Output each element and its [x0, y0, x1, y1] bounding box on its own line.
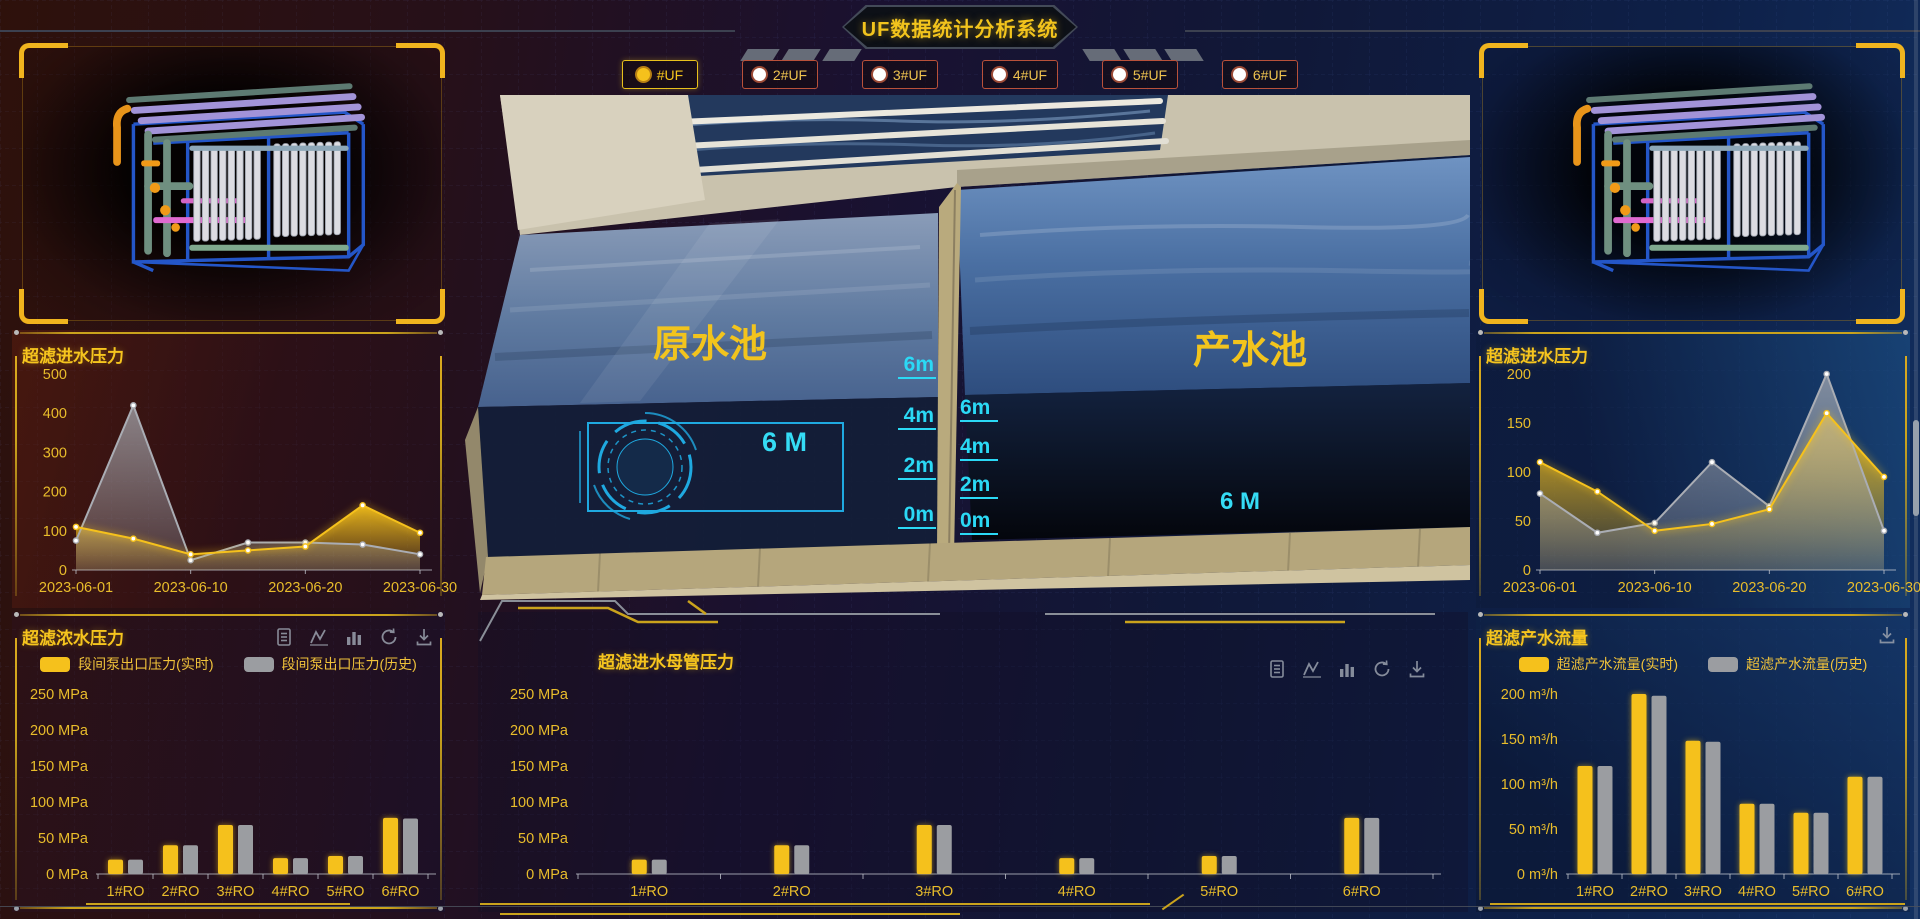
svg-text:3#RO: 3#RO — [915, 884, 953, 900]
svg-text:2023-06-20: 2023-06-20 — [1732, 580, 1806, 596]
refresh-icon[interactable] — [1371, 658, 1393, 680]
svg-text:50 m³/h: 50 m³/h — [1509, 822, 1558, 838]
svg-text:100: 100 — [1507, 465, 1531, 481]
legend-item-history[interactable]: 超滤产水流量(历史) — [1708, 654, 1867, 674]
header-line-right — [1185, 30, 1920, 32]
svg-text:1#RO: 1#RO — [1576, 884, 1614, 900]
svg-text:150 m³/h: 150 m³/h — [1501, 732, 1558, 748]
line-chart-icon[interactable] — [308, 626, 330, 648]
data-list-icon[interactable] — [273, 626, 295, 648]
uf-skid-3d-model[interactable] — [1511, 57, 1874, 298]
svg-text:5#RO: 5#RO — [1200, 884, 1238, 900]
svg-text:2#RO: 2#RO — [162, 884, 200, 900]
radio-icon — [753, 68, 766, 81]
svg-text:100 MPa: 100 MPa — [30, 795, 89, 811]
equipment-model-panel-left — [16, 40, 448, 327]
svg-text:5#RO: 5#RO — [327, 884, 365, 900]
footer-line — [0, 906, 1920, 907]
uf-dashboard: UF数据统计分析系统 #UF 2#UF 3#UF 4#UF 5#UF 6#UF — [0, 0, 1920, 919]
chart-toolbar — [1266, 658, 1428, 680]
title-badge: UF数据统计分析系统 — [842, 5, 1078, 49]
chart-toolbar — [273, 626, 435, 648]
svg-text:0: 0 — [59, 563, 67, 579]
download-icon[interactable] — [1876, 624, 1898, 646]
svg-text:200: 200 — [1507, 367, 1531, 383]
svg-text:0 MPa: 0 MPa — [526, 867, 569, 883]
svg-text:4#RO: 4#RO — [1058, 884, 1096, 900]
svg-text:2m: 2m — [960, 473, 990, 496]
svg-text:250 MPa: 250 MPa — [510, 687, 569, 703]
svg-text:6m: 6m — [960, 396, 990, 419]
panel-title: 超滤产水流量 — [1486, 624, 1588, 649]
pool-3d-scene[interactable]: 6m 4m 2m 0m 6m 4m 2m 0m 原水池 产水池 6 M 6 M — [460, 95, 1470, 600]
svg-text:2023-06-30: 2023-06-30 — [383, 580, 457, 596]
svg-text:3#RO: 3#RO — [1684, 884, 1722, 900]
chart-toolbar — [1876, 624, 1898, 646]
uf-filter-option-1[interactable]: #UF — [622, 60, 698, 89]
legend-item-realtime[interactable]: 段间泵出口压力(实时) — [40, 654, 213, 674]
uf-filter-option-6[interactable]: 6#UF — [1222, 60, 1298, 89]
svg-text:2023-06-01: 2023-06-01 — [39, 580, 113, 596]
svg-text:0: 0 — [1523, 563, 1531, 579]
legend-item-history[interactable]: 段间泵出口压力(历史) — [244, 654, 417, 674]
svg-text:2m: 2m — [904, 454, 934, 477]
svg-text:0 MPa: 0 MPa — [46, 867, 89, 883]
panel-title: 超滤浓水压力 — [22, 624, 124, 649]
uf-filter-option-3[interactable]: 3#UF — [862, 60, 938, 89]
raw-pool-label: 原水池 — [653, 324, 767, 366]
product-pool-level-value: 6 M — [1220, 488, 1260, 515]
svg-text:2023-06-01: 2023-06-01 — [1503, 580, 1577, 596]
uf-inlet-pressure-panel-right: 超滤进水压力 0501001502002023-06-012023-06-102… — [1476, 330, 1910, 608]
svg-text:6m: 6m — [904, 353, 934, 376]
uf-header-pipe-pressure-panel: 超滤进水母管压力 0 MPa50 MPa100 MPa150 MPa200 MP… — [478, 612, 1468, 912]
equipment-model-panel-right — [1476, 40, 1908, 327]
svg-text:1#RO: 1#RO — [107, 884, 145, 900]
svg-text:150 MPa: 150 MPa — [30, 759, 89, 775]
svg-text:50 MPa: 50 MPa — [38, 831, 89, 847]
svg-text:100 m³/h: 100 m³/h — [1501, 777, 1558, 793]
svg-text:50 MPa: 50 MPa — [518, 831, 569, 847]
panel-title: 超滤进水母管压力 — [598, 648, 734, 673]
svg-text:2023-06-30: 2023-06-30 — [1847, 580, 1920, 596]
svg-text:200 m³/h: 200 m³/h — [1501, 687, 1558, 703]
header-line-left — [0, 30, 735, 32]
svg-text:150 MPa: 150 MPa — [510, 759, 569, 775]
legend-item-realtime[interactable]: 超滤产水流量(实时) — [1519, 654, 1678, 674]
svg-text:4#RO: 4#RO — [272, 884, 310, 900]
uf-filter-option-2[interactable]: 2#UF — [742, 60, 818, 89]
download-icon[interactable] — [1406, 658, 1428, 680]
page-scrollbar-thumb[interactable] — [1913, 420, 1919, 516]
uf-filter-option-5[interactable]: 5#UF — [1102, 60, 1178, 89]
svg-text:0 m³/h: 0 m³/h — [1517, 867, 1558, 883]
svg-text:50: 50 — [1515, 514, 1531, 530]
radio-icon — [993, 68, 1006, 81]
svg-text:3#RO: 3#RO — [217, 884, 255, 900]
data-list-icon[interactable] — [1266, 658, 1288, 680]
page-title: UF数据统计分析系统 — [862, 13, 1059, 42]
uf-concentrate-pressure-panel: 超滤浓水压力 段间泵出口压力(实时) 段间泵出口压力(历史) 0 MPa50 M… — [12, 612, 445, 912]
svg-text:4#RO: 4#RO — [1738, 884, 1776, 900]
radio-icon — [873, 68, 886, 81]
svg-text:500: 500 — [43, 367, 67, 383]
svg-text:200 MPa: 200 MPa — [30, 723, 89, 739]
concentrate-pressure-bar-chart: 0 MPa50 MPa100 MPa150 MPa200 MPa250 MPa1… — [12, 682, 445, 910]
uf-skid-3d-model[interactable] — [51, 57, 414, 298]
svg-text:250 MPa: 250 MPa — [30, 687, 89, 703]
svg-text:6#RO: 6#RO — [1846, 884, 1884, 900]
svg-text:0m: 0m — [904, 503, 934, 526]
svg-text:400: 400 — [43, 406, 67, 422]
svg-text:4m: 4m — [904, 404, 934, 427]
raw-water-pool-front — [478, 397, 938, 557]
raw-pool-level-value: 6 M — [762, 427, 807, 457]
svg-text:100 MPa: 100 MPa — [510, 795, 569, 811]
radio-icon — [1113, 68, 1126, 81]
bar-chart-icon[interactable] — [343, 626, 365, 648]
svg-text:300: 300 — [43, 445, 67, 461]
svg-text:150: 150 — [1507, 416, 1531, 432]
uf-filter-option-4[interactable]: 4#UF — [982, 60, 1058, 89]
svg-text:4m: 4m — [960, 435, 990, 458]
svg-text:1#RO: 1#RO — [630, 884, 668, 900]
download-icon[interactable] — [413, 626, 435, 648]
uf-product-flow-panel: 超滤产水流量 超滤产水流量(实时) 超滤产水流量(历史) 0 m³/h50 m³… — [1476, 612, 1910, 912]
svg-text:6#RO: 6#RO — [1343, 884, 1381, 900]
bar-chart-icon[interactable] — [1336, 658, 1358, 680]
svg-text:100: 100 — [43, 524, 67, 540]
radio-icon — [1233, 68, 1246, 81]
line-chart-icon[interactable] — [1301, 658, 1323, 680]
svg-text:2023-06-20: 2023-06-20 — [268, 580, 342, 596]
header-pipe-pressure-bar-chart: 0 MPa50 MPa100 MPa150 MPa200 MPa250 MPa1… — [478, 682, 1468, 910]
product-flow-bar-chart: 0 m³/h50 m³/h100 m³/h150 m³/h200 m³/h1#R… — [1476, 682, 1910, 910]
svg-text:200: 200 — [43, 485, 67, 501]
svg-text:6#RO: 6#RO — [382, 884, 420, 900]
svg-text:5#RO: 5#RO — [1792, 884, 1830, 900]
inlet-pressure-line-chart-left: 01002003004005002023-06-012023-06-102023… — [12, 330, 445, 608]
chart-legend: 段间泵出口压力(实时) 段间泵出口压力(历史) — [12, 654, 445, 674]
svg-text:0m: 0m — [960, 509, 990, 532]
inlet-pressure-line-chart-right: 0501001502002023-06-012023-06-102023-06-… — [1476, 330, 1910, 608]
uf-unit-filter: #UF 2#UF 3#UF 4#UF 5#UF 6#UF — [622, 60, 1298, 89]
product-pool-label: 产水池 — [1193, 330, 1307, 372]
svg-text:2023-06-10: 2023-06-10 — [154, 580, 228, 596]
svg-text:2#RO: 2#RO — [773, 884, 811, 900]
product-water-pool-deep — [965, 383, 1470, 540]
refresh-icon[interactable] — [378, 626, 400, 648]
radio-icon — [637, 68, 650, 81]
svg-text:200 MPa: 200 MPa — [510, 723, 569, 739]
svg-text:2#RO: 2#RO — [1630, 884, 1668, 900]
chart-legend: 超滤产水流量(实时) 超滤产水流量(历史) — [1476, 654, 1910, 674]
uf-inlet-pressure-panel-left: 超滤进水压力 01002003004005002023-06-012023-06… — [12, 330, 445, 608]
svg-text:2023-06-10: 2023-06-10 — [1618, 580, 1692, 596]
